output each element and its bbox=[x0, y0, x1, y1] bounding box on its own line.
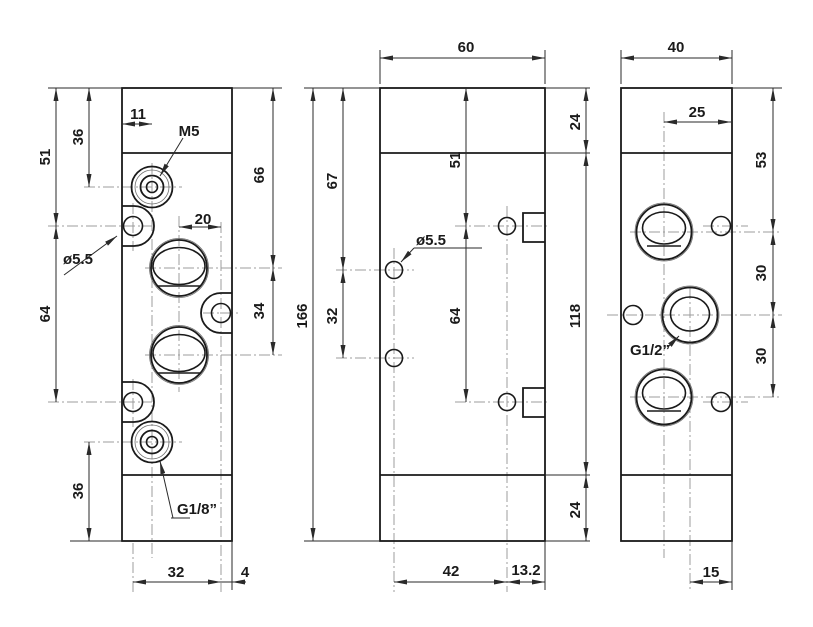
valve-dimension-drawing: 51 64 36 36 66 34 11 20 32 4 M5 ø5.5 G1/… bbox=[0, 0, 813, 627]
front-view: 51 64 36 36 66 34 11 20 32 4 M5 ø5.5 G1/… bbox=[37, 88, 282, 592]
dim-label-back-53: 53 bbox=[753, 152, 770, 169]
dim-label-back-30-upper: 30 bbox=[753, 265, 770, 282]
dim-label-back-15: 15 bbox=[703, 564, 720, 581]
dim-label-back-30-lower: 30 bbox=[753, 348, 770, 365]
back-body-outline bbox=[621, 88, 732, 541]
dim-label-front-32: 32 bbox=[168, 564, 185, 581]
dim-label-side-24-top: 24 bbox=[567, 113, 584, 130]
dim-label-side-51: 51 bbox=[447, 152, 464, 169]
dim-label-side-166: 166 bbox=[294, 303, 311, 328]
callout-g18-label: G1/8” bbox=[177, 501, 217, 518]
dim-label-side-64: 64 bbox=[447, 307, 464, 324]
dim-label-side-13-2: 13.2 bbox=[511, 562, 540, 579]
dim-label-front-34: 34 bbox=[251, 302, 268, 319]
callout-g12-label: G1/2” bbox=[630, 342, 670, 359]
dim-label-front-4: 4 bbox=[241, 564, 250, 581]
callout-front-dia55-label: ø5.5 bbox=[63, 251, 93, 268]
dim-label-front-36-bottom: 36 bbox=[70, 483, 87, 500]
side-boss-top bbox=[523, 213, 545, 242]
dim-label-side-24-bottom: 24 bbox=[567, 501, 584, 518]
side-view: 60 166 67 32 51 64 24 118 24 42 13.2 ø5.… bbox=[294, 39, 590, 592]
dim-label-side-32: 32 bbox=[324, 308, 341, 325]
dim-label-side-60: 60 bbox=[458, 39, 475, 56]
callout-m5-label: M5 bbox=[179, 123, 200, 140]
dim-label-back-25: 25 bbox=[689, 104, 706, 121]
dim-label-front-36-top: 36 bbox=[70, 129, 87, 146]
dim-label-back-40: 40 bbox=[668, 39, 685, 56]
dim-label-front-64: 64 bbox=[37, 305, 54, 322]
dim-label-front-51: 51 bbox=[37, 149, 54, 166]
dim-label-side-67: 67 bbox=[324, 173, 341, 190]
dim-label-front-66: 66 bbox=[251, 167, 268, 184]
front-body-outline bbox=[122, 88, 232, 541]
dim-label-front-11: 11 bbox=[130, 106, 146, 123]
dim-label-side-118: 118 bbox=[567, 304, 584, 328]
dim-label-side-42: 42 bbox=[443, 563, 460, 580]
dim-label-front-20: 20 bbox=[195, 211, 212, 228]
back-view: 40 25 53 30 30 15 G1/2” bbox=[607, 39, 782, 592]
callout-side-dia55-label: ø5.5 bbox=[416, 232, 446, 249]
drawing-canvas: 51 64 36 36 66 34 11 20 32 4 M5 ø5.5 G1/… bbox=[0, 0, 813, 627]
